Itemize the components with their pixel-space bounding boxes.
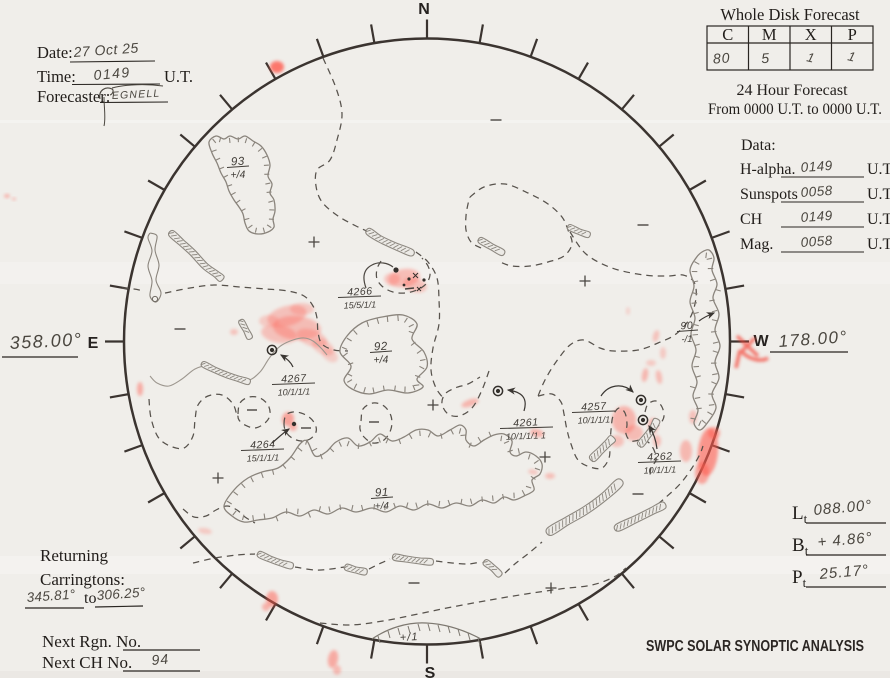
svg-text:N: N (418, 1, 430, 18)
svg-text:M: M (762, 25, 777, 44)
svg-text:P: P (848, 25, 857, 44)
svg-text:SWPC SOLAR SYNOPTIC ANALYSIS: SWPC SOLAR SYNOPTIC ANALYSIS (646, 638, 864, 655)
svg-text:+/4: +/4 (373, 354, 388, 367)
svg-text:U.T.: U.T. (867, 186, 890, 203)
svg-text:5: 5 (761, 50, 771, 67)
svg-text:0149: 0149 (93, 64, 131, 83)
svg-text:10/1/1/1: 10/1/1/1 (643, 464, 676, 475)
svg-text:15/1/1/1: 15/1/1/1 (246, 452, 279, 463)
svg-text:U.T.: U.T. (867, 161, 890, 178)
svg-text:24 Hour Forecast: 24 Hour Forecast (736, 82, 848, 99)
svg-text:X: X (805, 25, 817, 44)
svg-text:Date:: Date: (37, 43, 73, 62)
svg-text:94: 94 (151, 651, 170, 668)
svg-text:Next Rgn. No.: Next Rgn. No. (42, 632, 141, 651)
svg-text:U.T.: U.T. (867, 211, 890, 228)
svg-text:0149: 0149 (800, 158, 833, 175)
svg-text:Sunspots: Sunspots (740, 186, 798, 203)
svg-text:Time:: Time: (37, 67, 76, 86)
svg-text:S: S (425, 665, 436, 678)
svg-text:+/1: +/1 (400, 631, 419, 644)
svg-text:0149: 0149 (800, 208, 833, 225)
svg-text:10/1/1/1 1: 10/1/1/1 1 (506, 430, 546, 441)
svg-text:+/4: +/4 (375, 501, 390, 513)
svg-text:10/1/1/1: 10/1/1/1 (277, 386, 310, 397)
svg-text:H-alpha.: H-alpha. (740, 161, 796, 178)
svg-text:0058: 0058 (800, 183, 833, 200)
svg-text:0058: 0058 (800, 233, 833, 250)
svg-text:U.T.: U.T. (164, 67, 193, 86)
svg-text:C: C (722, 25, 733, 44)
svg-text:358.00°: 358.00° (9, 329, 83, 353)
svg-text:to: to (84, 590, 96, 607)
svg-text:CH: CH (740, 211, 763, 228)
svg-text:80: 80 (712, 49, 731, 66)
svg-text:15/5/1/1: 15/5/1/1 (343, 299, 376, 310)
svg-text:Mag.: Mag. (740, 236, 773, 253)
svg-text:From 0000 U.T. to 0000 U.T.: From 0000 U.T. to 0000 U.T. (708, 101, 882, 118)
svg-text:Whole Disk Forecast: Whole Disk Forecast (720, 5, 860, 24)
svg-text:E: E (88, 335, 99, 352)
svg-text:10/1/1/1: 10/1/1/1 (577, 414, 610, 425)
svg-text:Next CH No.: Next CH No. (42, 653, 132, 672)
svg-text:-/1: -/1 (681, 334, 692, 345)
svg-text:W: W (753, 333, 769, 350)
svg-text:EGNELL: EGNELL (112, 87, 161, 102)
svg-text:Data:: Data: (741, 137, 776, 154)
svg-text:U.T.: U.T. (867, 236, 890, 253)
svg-text:Returning: Returning (40, 546, 108, 565)
svg-text:+/4: +/4 (230, 169, 245, 182)
